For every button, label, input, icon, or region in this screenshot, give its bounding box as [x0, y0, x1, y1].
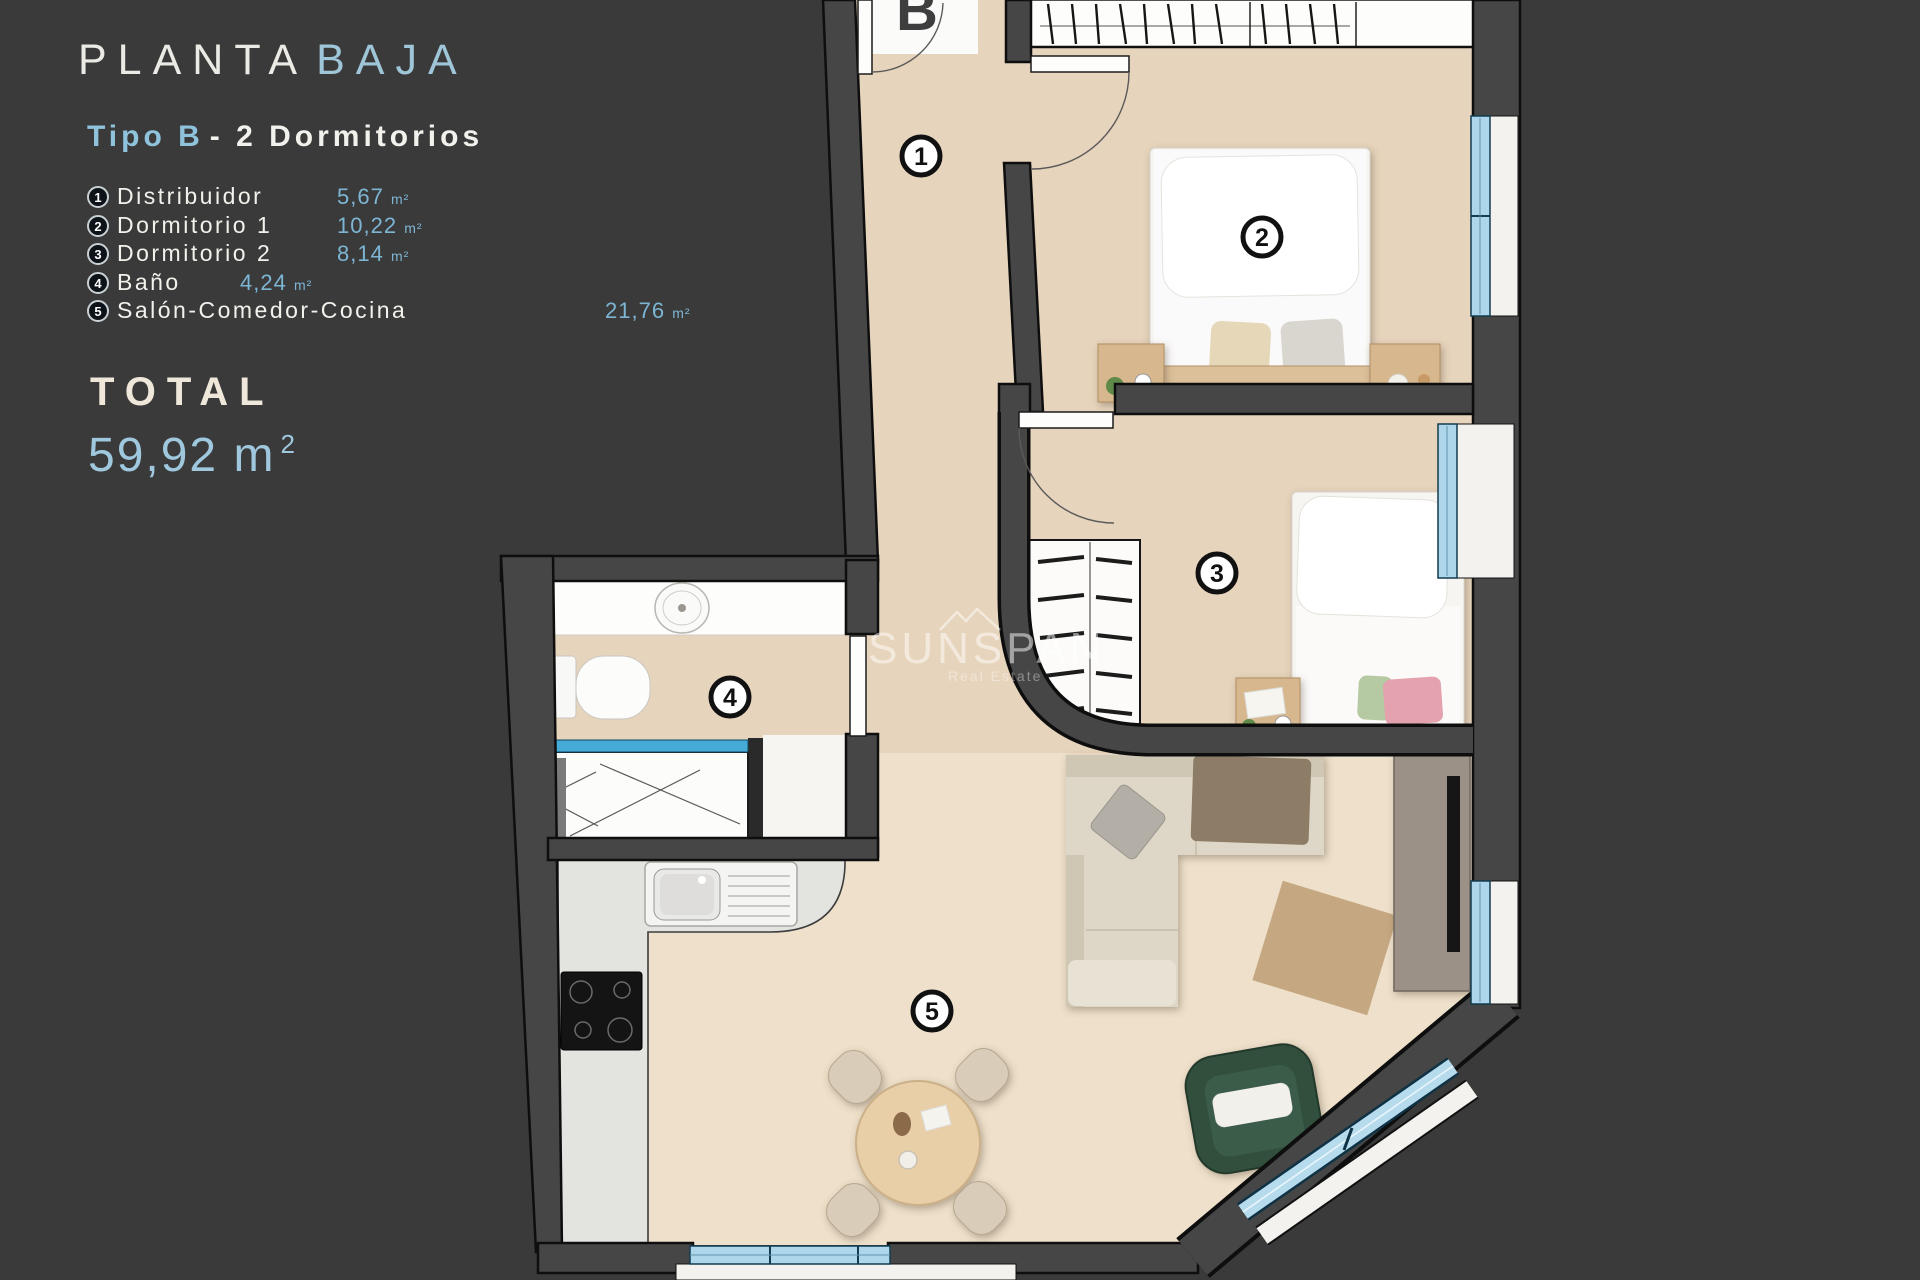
total-unit: m: [233, 429, 275, 482]
room-legend: 1 Distribuidor 5,67 m² 2 Dormitorio 1 10…: [87, 183, 847, 326]
legend-area-4: 4,24 m²: [240, 270, 312, 296]
legend-area-2: 10,22 m²: [337, 213, 423, 239]
legend-name-5: Salón-Comedor-Cocina: [117, 297, 407, 324]
bed-double-bedroom2: [1150, 148, 1370, 398]
legend-name-1: Distribuidor: [117, 183, 263, 210]
legend-area-1: 5,67 m²: [337, 184, 409, 210]
badge-3: 3: [1198, 554, 1236, 592]
legend-badge-1: 1: [87, 186, 109, 208]
paper-icon: [1244, 687, 1285, 718]
legend-badge-5: 5: [87, 300, 109, 322]
window-living: [1471, 881, 1518, 1004]
total-value: 59,92 m2: [88, 428, 297, 483]
wall-bathroom-bottom: [548, 838, 878, 860]
area-value-3: 8,14: [337, 241, 384, 266]
bed3-pillow: [1296, 495, 1450, 618]
title-part1: PLANTA: [78, 36, 308, 84]
wall-corridor-right-top: [1006, 0, 1031, 62]
closet-bedroom2: [1031, 0, 1473, 47]
total-number: 59,92: [88, 429, 218, 482]
total-label: TOTAL: [90, 370, 275, 415]
svg-text:1: 1: [914, 143, 928, 171]
badge-5: 5: [913, 992, 951, 1030]
plan-subtitle: Tipo B- 2 Dormitorios: [87, 120, 483, 154]
area-value-5: 21,76: [605, 298, 665, 323]
wall-junction: [999, 384, 1030, 414]
toilet-icon: [576, 656, 650, 719]
page-title: PLANTABAJA: [78, 36, 468, 85]
legend-badge-4: 4: [87, 272, 109, 294]
subtitle-type: Tipo B: [87, 120, 204, 153]
bed3-cushion-pink: [1382, 676, 1443, 726]
door-bathroom: [850, 636, 866, 736]
watermark-tagline: Real Estate: [948, 668, 1042, 684]
legend-badge-2: 2: [87, 215, 109, 237]
legend-name-2: Dormitorio 1: [117, 212, 272, 239]
wall-left-exterior: [501, 556, 562, 1252]
window-bedroom2: [1471, 116, 1518, 316]
sofa-throw-brown: [1191, 755, 1312, 845]
watermark-name: SUNSPAN: [868, 624, 1105, 673]
svg-text:2: 2: [1255, 224, 1269, 252]
dining-table: [856, 1081, 980, 1205]
sink-drain: [678, 604, 686, 612]
legend-area-3: 8,14 m²: [337, 241, 409, 267]
sofa-end-cushion: [1068, 960, 1176, 1006]
area-value-1: 5,67: [337, 184, 384, 209]
badge-1: 1: [902, 137, 940, 175]
legend-name-3: Dormitorio 2: [117, 240, 272, 267]
legend-badge-3: 3: [87, 243, 109, 265]
area-value-4: 4,24: [240, 270, 287, 295]
badge-4: 4: [711, 678, 749, 716]
legend-name-4: Baño: [117, 269, 181, 296]
tv-icon: [1447, 776, 1460, 952]
svg-text:4: 4: [723, 684, 737, 712]
area-unit-5: m²: [672, 305, 690, 321]
subtitle-rooms: - 2 Dormitorios: [210, 120, 483, 153]
legend-row-distribuidor: 1 Distribuidor 5,67 m²: [87, 183, 847, 212]
area-unit-3: m²: [391, 248, 409, 264]
area-unit-1: m²: [391, 191, 409, 207]
svg-text:5: 5: [925, 998, 939, 1026]
shower-glass: [552, 740, 748, 752]
cup-icon-2: [899, 1151, 917, 1169]
total-sup: 2: [280, 429, 296, 459]
svg-text:3: 3: [1210, 560, 1224, 588]
entrance-label: B: [896, 0, 938, 43]
floorplan-page: B: [0, 0, 1920, 1280]
title-part2: BAJA: [316, 36, 468, 84]
area-unit-4: m²: [294, 277, 312, 293]
legend-row-salon: 5 Salón-Comedor-Cocina 21,76 m²: [87, 297, 847, 326]
legend-row-dormitorio2: 3 Dormitorio 2 8,14 m²: [87, 240, 847, 269]
wall-bottom-left: [538, 1243, 693, 1273]
food-icon: [893, 1112, 911, 1136]
legend-area-5: 21,76 m²: [605, 298, 691, 324]
sideboard-tv: [1394, 755, 1470, 991]
legend-row-dormitorio1: 2 Dormitorio 1 10,22 m²: [87, 212, 847, 241]
badge-2: 2: [1243, 218, 1281, 256]
area-unit-2: m²: [404, 220, 422, 236]
wall-bed2-bed3: [1115, 384, 1473, 414]
sink-highlight: [698, 876, 706, 884]
wall-bathroom-right-upper: [846, 560, 878, 634]
window-bedroom3: [1438, 424, 1514, 578]
bathroom-floor-white: [763, 735, 845, 845]
legend-row-bano: 4 Baño 4,24 m²: [87, 269, 847, 298]
shower-partition: [748, 738, 763, 845]
wall-bathroom-top: [501, 556, 878, 581]
area-value-2: 10,22: [337, 213, 397, 238]
